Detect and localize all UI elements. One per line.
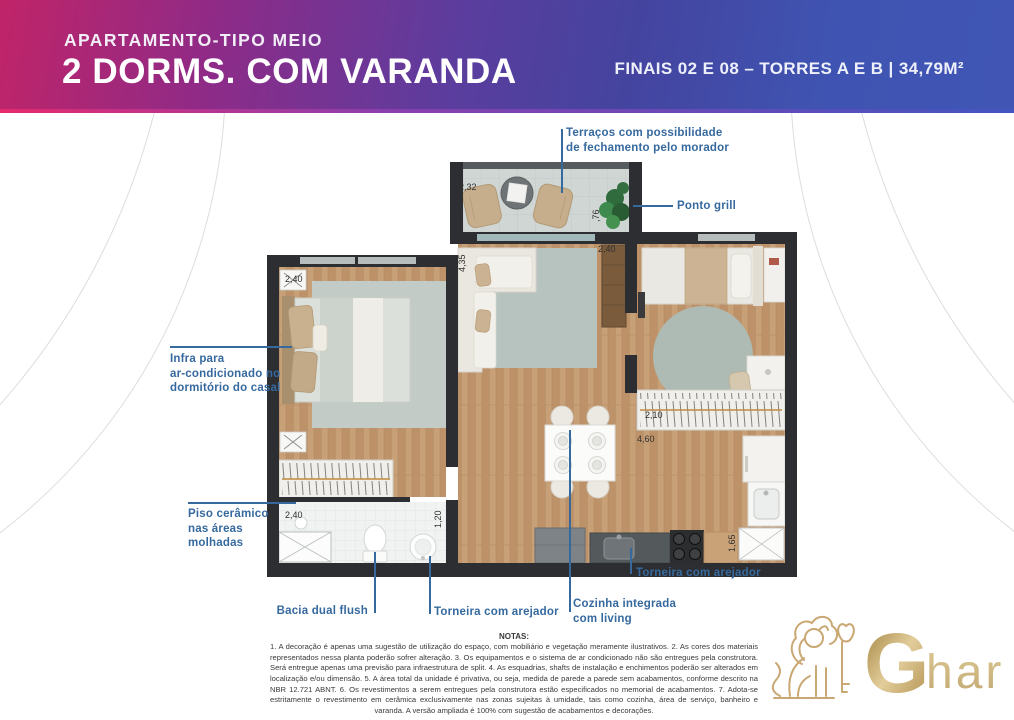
callout-line-grill [633,205,673,207]
callout-line-toilet [374,552,376,613]
callout-bath-faucet: Torneira com arejador [434,605,559,620]
dim-bath-width: 2,40 [285,510,303,520]
callout-kitchen-faucet: Torneira com arejador [636,566,761,581]
header-banner: APARTAMENTO-TIPO MEIO 2 DORMS. COM VARAN… [0,0,1014,109]
ac-infra-symbol [280,432,306,452]
terrace-glass-door [477,234,609,241]
terrace-rail [458,162,634,169]
dim-terrace-depth: ,76 [591,209,601,222]
dim-bedroom2-side: 2,60 [627,252,637,270]
header-subtitle: APARTAMENTO-TIPO MEIO [64,30,323,51]
tall-cabinet [602,245,626,327]
bed-couple [282,296,410,404]
dim-living-top: 2,40 [598,244,616,254]
dim-wardrobe2-width: 2,10 [645,410,663,420]
callout-ceramic: Piso cerâmico nas áreas molhadas [188,507,269,551]
wardrobe-couple [279,460,393,498]
dim-laundry: 1,65 [727,534,737,552]
logo-letter-g: G [864,616,929,710]
callout-ceramic-line1: Piso cerâmico [188,507,269,522]
callout-ac-line3: dormitório do casal [170,381,281,396]
dim-terrace-width: 2,32 [459,182,477,192]
kitchen-island [535,528,585,563]
dim-living-length: 4,35 [457,254,467,272]
callout-ceramic-line2: nas áreas [188,522,269,537]
nightstand [764,248,785,302]
header-accent-strip [0,109,1014,113]
callout-kitchen-line2: com living [573,612,676,627]
stove [670,530,704,563]
table-tray [507,183,527,203]
dim-bedroom1-length: 3,00 [268,412,278,430]
notes-heading: NOTAS: [270,632,758,641]
callout-ac-line1: Infra para [170,352,281,367]
callout-kitchen: Cozinha integrada com living [573,597,676,626]
bed-single [642,246,763,306]
shower-box [279,532,331,562]
callout-line-ac [170,346,292,348]
header-unit-info: FINAIS 02 E 08 – TORRES A E B | 34,79M² [615,59,964,79]
callout-terrace-line1: Terraços com possibilidade [566,126,729,141]
callout-terrace: Terraços com possibilidade de fechamento… [566,126,729,155]
laundry-sink [748,482,785,526]
callout-toilet: Bacia dual flush [252,604,368,619]
bathroom-sink [410,534,436,560]
callout-ac: Infra para ar-condicionado no dormitório… [170,352,281,396]
bedroom2-window [698,234,755,241]
dim-bath-depth: 1,20 [433,510,443,528]
lion-key-icon [773,617,854,698]
callout-kitchen-line1: Cozinha integrada [573,597,676,612]
callout-line-kitchen [569,430,571,612]
callout-terrace-line2: de fechamento pelo morador [566,141,729,156]
callout-line-terrace [561,129,563,193]
page: APARTAMENTO-TIPO MEIO 2 DORMS. COM VARAN… [0,0,1014,720]
wall-shelf [638,292,645,318]
callout-line-bath-faucet [429,556,431,614]
dim-living-width: 4,60 [637,434,655,444]
callout-line-kitchen-faucet [630,548,632,574]
notes-body: 1. A decoração é apenas uma sugestão de … [270,642,758,716]
callout-ceramic-line3: molhadas [188,536,269,551]
callout-line-ceramic [188,502,296,504]
fridge [743,436,785,482]
notes-block: NOTAS: 1. A decoração é apenas uma suges… [270,632,758,716]
dim-bedroom1-width: 2,40 [285,274,303,284]
floor-plan: 2,32 ,76 4,35 2,40 2,60 2,40 3,00 2,40 1… [265,160,800,580]
ghar-logo: G har [768,608,1008,716]
logo-text-har: har [926,646,1004,699]
callout-grill: Ponto grill [677,199,736,214]
laundry-area [739,528,784,560]
page-title: 2 DORMS. COM VARANDA [62,52,517,92]
callout-ac-line2: ar-condicionado no [170,367,281,382]
